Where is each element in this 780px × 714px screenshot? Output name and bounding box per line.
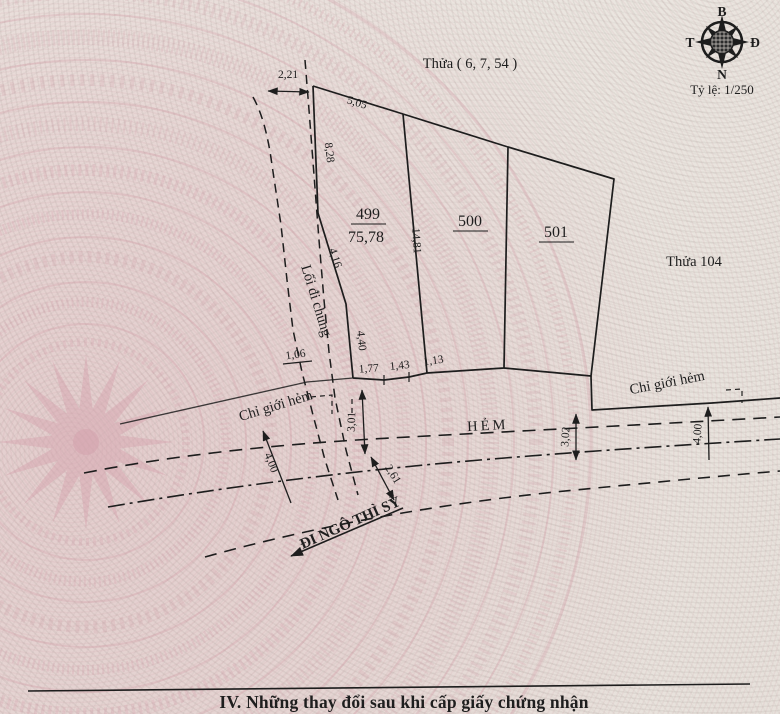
bottom-section: IV. Những thay đổi sau khi cấp giấy chứn… bbox=[28, 684, 750, 712]
land-certificate-map-page: Thửa ( 6, 7, 54 ) Thửa 104 499 75,78 500… bbox=[0, 0, 780, 714]
alley-boundary-label-left: Chỉ giới hẻm bbox=[237, 387, 315, 425]
compass-rose: B N T Đ Tỷ lệ: 1/250 bbox=[685, 4, 760, 97]
dim-3-01: 3,01 bbox=[346, 411, 359, 432]
dim-3-02: 3,02 bbox=[559, 426, 572, 447]
neighbor-parcel-label: Thửa 104 bbox=[666, 254, 723, 270]
dim-4-40: 4,40 bbox=[354, 330, 368, 352]
parcel-499-area: 75,78 bbox=[348, 229, 384, 246]
compass-globe bbox=[711, 31, 734, 54]
compass-west-label: T bbox=[685, 35, 694, 50]
compass-north-label: B bbox=[717, 4, 726, 19]
dim-2-21: 2,21 bbox=[278, 69, 298, 81]
dim-1-43: 1,43 bbox=[389, 359, 411, 373]
section-heading: IV. Những thay đổi sau khi cấp giấy chứn… bbox=[219, 692, 588, 712]
parcel-501-id: 501 bbox=[544, 224, 568, 241]
dim-4-16: 4,16 bbox=[326, 247, 344, 270]
dim-4-00-right-arrow bbox=[708, 407, 709, 460]
alley-boundary-label-right: Chỉ giới hẻm bbox=[628, 368, 707, 398]
top-parcels-label: Thửa ( 6, 7, 54 ) bbox=[423, 56, 518, 72]
parcel-500-id: 500 bbox=[458, 213, 482, 230]
dim-4-00-right: 4,00 bbox=[691, 423, 704, 444]
scale-label: Tỷ lệ: 1/250 bbox=[690, 82, 754, 97]
dim-1-06: 1,06 bbox=[285, 348, 307, 363]
dashed-boundaries bbox=[84, 60, 780, 557]
dim-2-21-arrow bbox=[268, 91, 309, 92]
parcel-499-id: 499 bbox=[356, 206, 380, 223]
compass-east-label: Đ bbox=[750, 35, 760, 50]
cadastral-map-svg: Thửa ( 6, 7, 54 ) Thửa 104 499 75,78 500… bbox=[0, 0, 780, 714]
dim-1-13: 1,13 bbox=[423, 354, 445, 369]
compass-south-label: N bbox=[717, 67, 727, 82]
dim-8-28: 8,28 bbox=[322, 142, 336, 164]
dim-14-81: 14,81 bbox=[409, 227, 423, 254]
alley-label: HẺM bbox=[467, 416, 509, 435]
dim-1-77: 1,77 bbox=[358, 362, 379, 375]
